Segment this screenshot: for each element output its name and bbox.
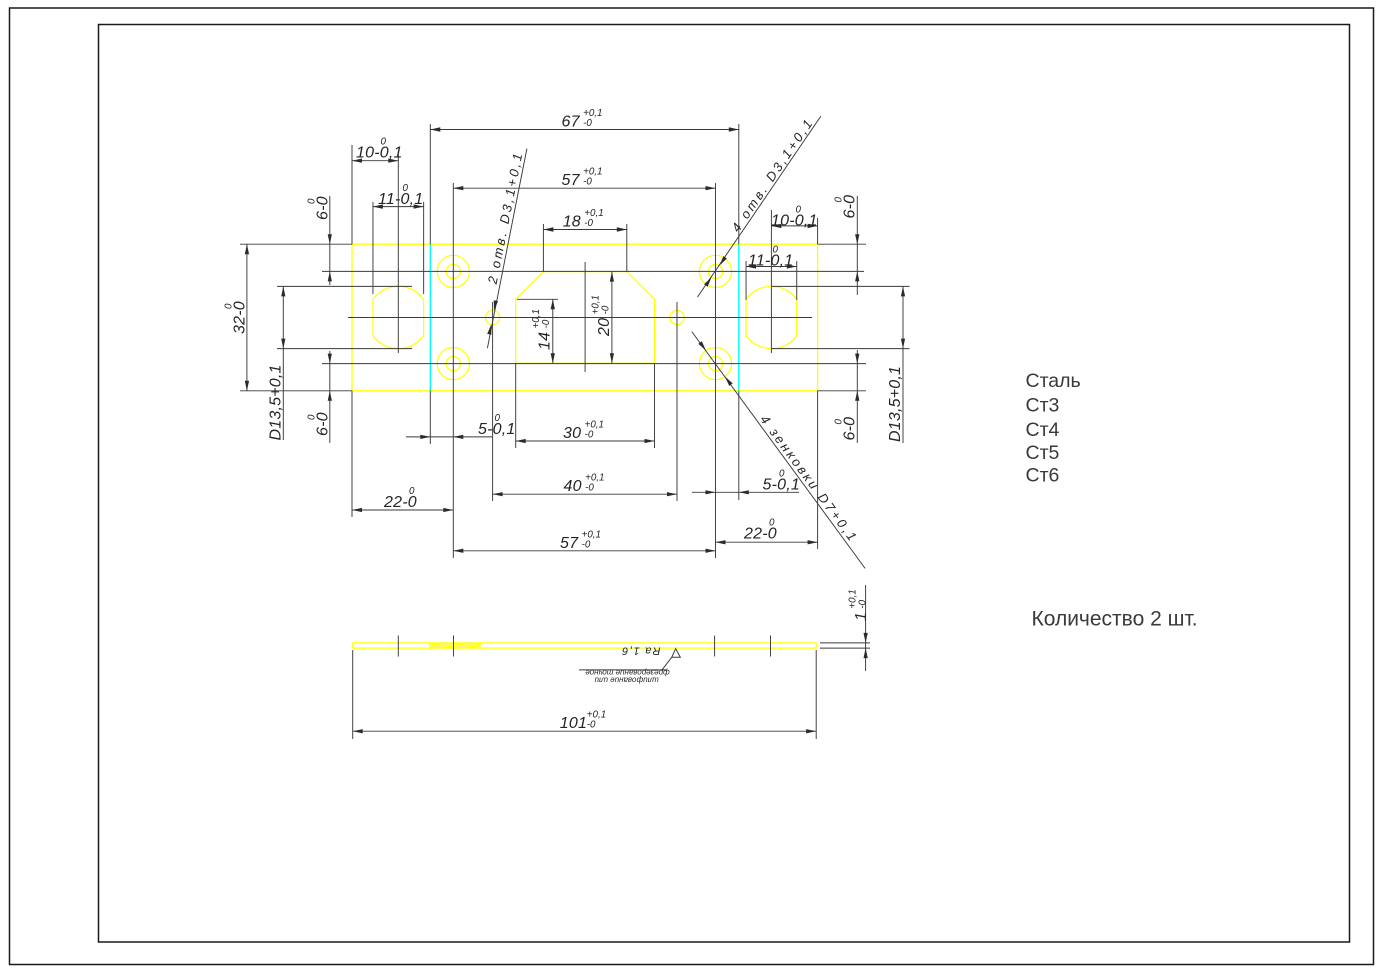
svg-text:0: 0 (381, 137, 387, 148)
svg-text:18: 18 (563, 214, 581, 231)
svg-text:0: 0 (409, 486, 415, 497)
svg-text:Количество 2 шт.: Количество 2 шт. (1032, 608, 1198, 631)
svg-text:D13,5+0,1: D13,5+0,1 (268, 364, 285, 440)
svg-text:фрезерование точное: фрезерование точное (585, 668, 670, 677)
svg-text:0: 0 (773, 245, 779, 256)
svg-text:20: 20 (596, 318, 613, 337)
svg-text:101: 101 (560, 715, 587, 732)
svg-text:0: 0 (403, 183, 409, 194)
svg-text:67: 67 (562, 114, 581, 131)
svg-text:-0: -0 (585, 483, 594, 494)
svg-text:0: 0 (307, 198, 318, 204)
svg-text:14: 14 (537, 332, 554, 350)
svg-text:-0: -0 (541, 319, 552, 328)
svg-text:1: 1 (853, 612, 870, 621)
svg-text:0: 0 (307, 414, 318, 420)
svg-text:-0: -0 (587, 720, 596, 731)
svg-text:-0: -0 (585, 430, 594, 441)
svg-text:0: 0 (224, 303, 235, 309)
svg-text:Ст6: Ст6 (1026, 465, 1060, 487)
svg-text:11-0,1: 11-0,1 (378, 191, 423, 208)
svg-text:57: 57 (560, 535, 579, 552)
svg-text:10-0,1: 10-0,1 (356, 145, 403, 162)
svg-text:-0: -0 (583, 118, 592, 129)
svg-text:D13,5+0,1: D13,5+0,1 (887, 366, 904, 442)
svg-text:11-0,1: 11-0,1 (748, 253, 793, 270)
svg-text:0: 0 (834, 197, 845, 203)
svg-text:Ст3: Ст3 (1026, 395, 1060, 417)
svg-text:Сталь: Сталь (1026, 370, 1081, 392)
svg-text:-0: -0 (584, 218, 593, 229)
svg-text:30: 30 (563, 425, 581, 442)
svg-text:0: 0 (495, 413, 501, 424)
svg-text:0: 0 (779, 468, 785, 479)
svg-text:Ст5: Ст5 (1026, 442, 1060, 464)
svg-text:10-0,1: 10-0,1 (771, 212, 818, 229)
svg-text:-0: -0 (600, 305, 611, 314)
svg-text:40: 40 (564, 478, 582, 495)
svg-text:-0: -0 (857, 599, 868, 608)
svg-text:0: 0 (769, 518, 775, 529)
svg-text:-0: -0 (583, 177, 592, 188)
svg-text:Ст4: Ст4 (1026, 419, 1060, 441)
svg-text:Ra 1,6: Ra 1,6 (621, 645, 661, 657)
svg-text:0: 0 (796, 204, 802, 215)
svg-text:57: 57 (562, 172, 581, 189)
svg-text:-0: -0 (582, 539, 591, 550)
svg-text:0: 0 (834, 419, 845, 425)
